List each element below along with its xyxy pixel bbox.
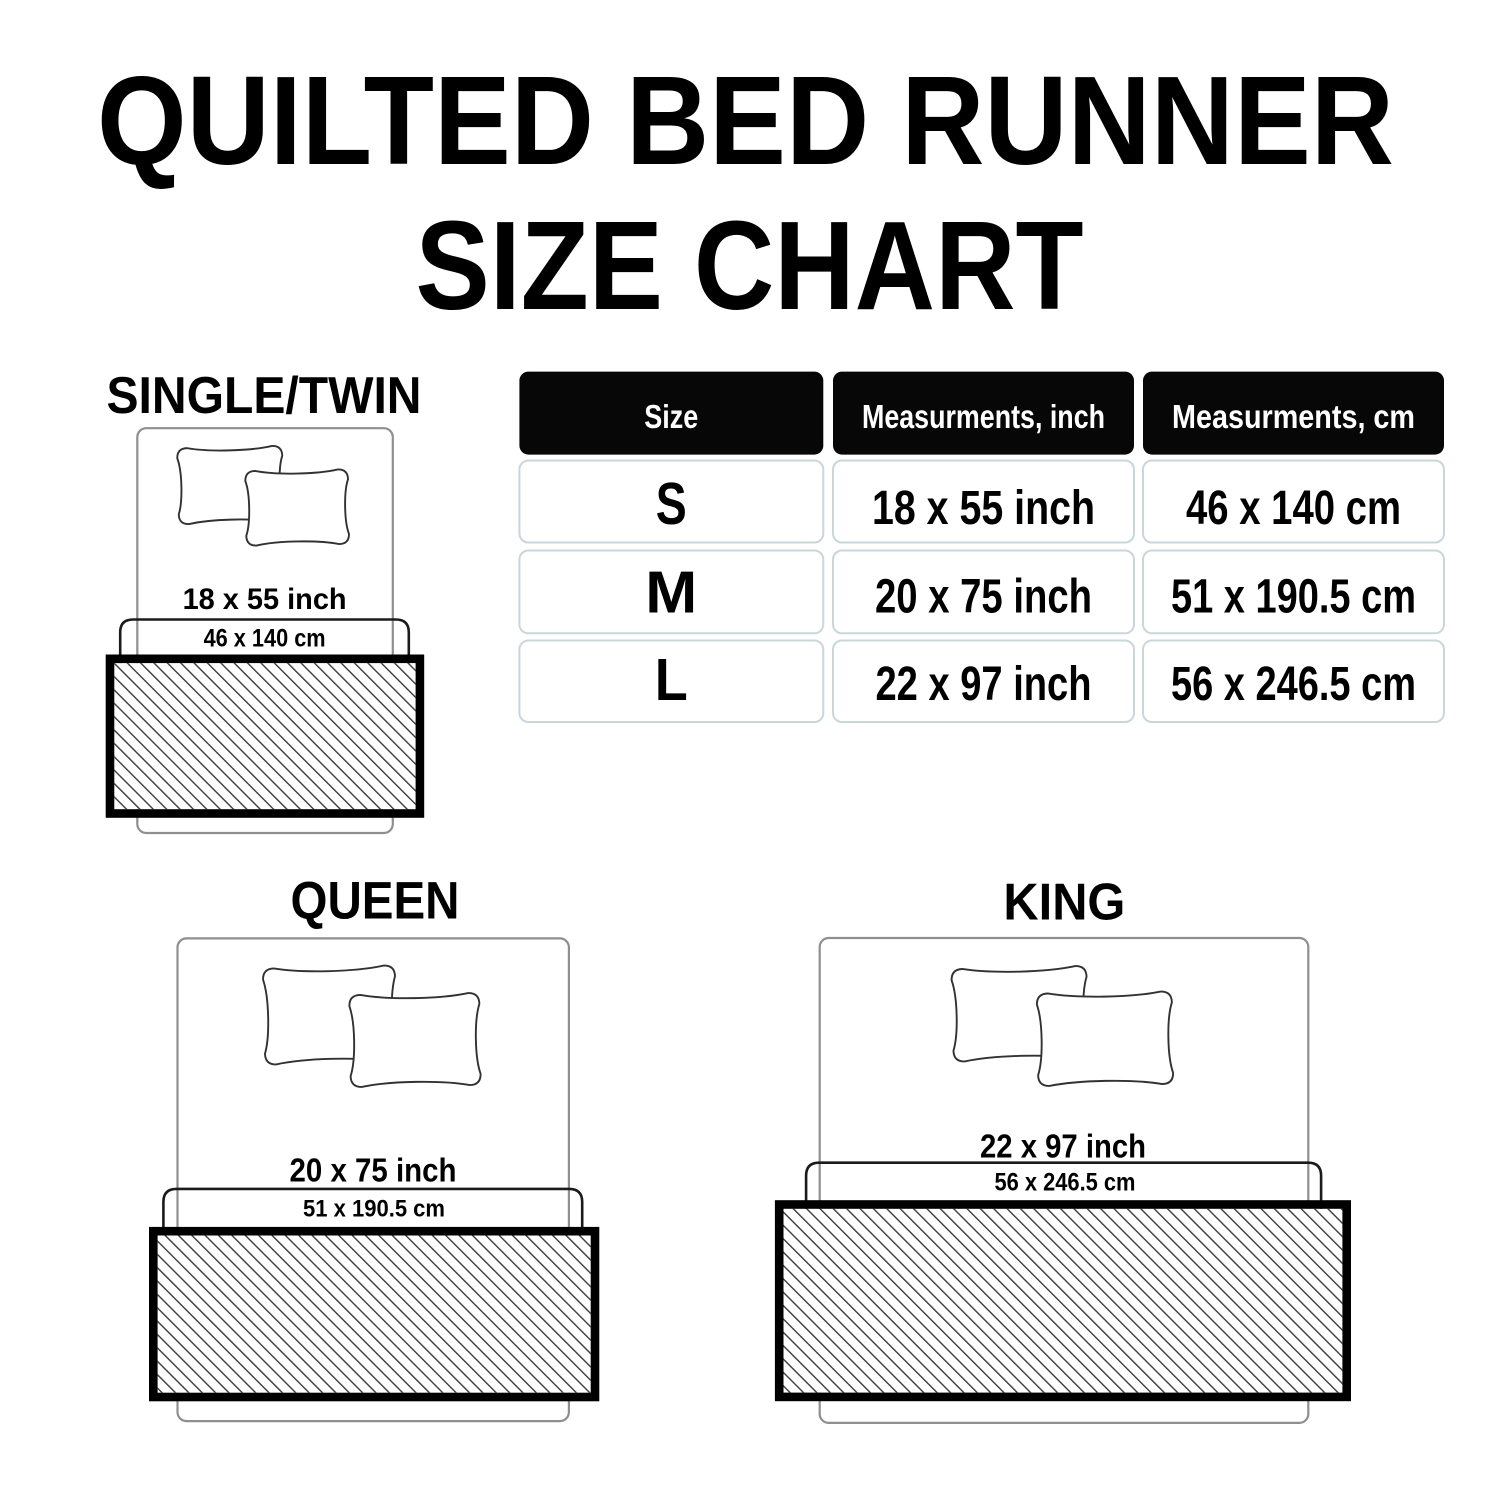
svg-text:51 x 190.5 cm: 51 x 190.5 cm — [1171, 571, 1416, 624]
svg-text:20 x 75 inch: 20 x 75 inch — [875, 571, 1092, 624]
svg-text:QUEEN: QUEEN — [291, 872, 460, 931]
svg-text:51 x 190.5 cm: 51 x 190.5 cm — [303, 1197, 445, 1223]
svg-text:L: L — [655, 647, 688, 713]
svg-text:S: S — [656, 471, 687, 537]
svg-text:M: M — [645, 560, 697, 626]
svg-text:KING: KING — [1003, 873, 1125, 931]
svg-text:22 x 97 inch: 22 x 97 inch — [876, 658, 1092, 711]
svg-text:46 x 140 cm: 46 x 140 cm — [1186, 482, 1401, 535]
svg-text:20 x 75 inch: 20 x 75 inch — [290, 1151, 457, 1188]
svg-text:18 x 55 inch: 18 x 55 inch — [183, 583, 347, 616]
svg-text:56 x 246.5 cm: 56 x 246.5 cm — [995, 1168, 1136, 1196]
svg-text:SIZE CHART: SIZE CHART — [416, 195, 1084, 336]
svg-text:QUILTED BED RUNNER: QUILTED BED RUNNER — [97, 50, 1394, 191]
svg-text:Size: Size — [644, 398, 698, 435]
svg-text:56 x 246.5 cm: 56 x 246.5 cm — [1171, 658, 1416, 711]
svg-text:18 x 55 inch: 18 x 55 inch — [872, 482, 1095, 535]
svg-text:Measurments, cm: Measurments, cm — [1172, 398, 1415, 435]
svg-text:SINGLE/TWIN: SINGLE/TWIN — [107, 366, 422, 424]
svg-text:46 x 140 cm: 46 x 140 cm — [204, 625, 326, 653]
svg-text:22 x 97 inch: 22 x 97 inch — [980, 1128, 1146, 1165]
svg-text:Measurments, inch: Measurments, inch — [862, 398, 1105, 435]
